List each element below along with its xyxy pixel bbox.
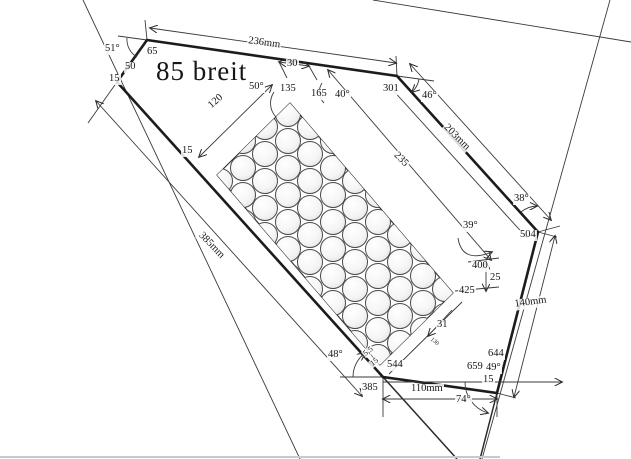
hole [342, 195, 368, 221]
hole [387, 303, 413, 329]
technical-drawing-canvas: 51°65501585 breit236mm3050°13516540°3014… [0, 0, 631, 459]
hole [252, 168, 278, 194]
hole [387, 249, 413, 275]
hole [342, 303, 368, 329]
hole [297, 141, 323, 167]
hole [297, 249, 323, 275]
hole [252, 195, 278, 221]
hole [297, 168, 323, 194]
hole [342, 249, 368, 275]
hole [297, 195, 323, 221]
hole [252, 141, 278, 167]
hole [342, 222, 368, 248]
hole [342, 276, 368, 302]
hole [387, 276, 413, 302]
scan-page-edge [0, 456, 500, 458]
hole [297, 222, 323, 248]
